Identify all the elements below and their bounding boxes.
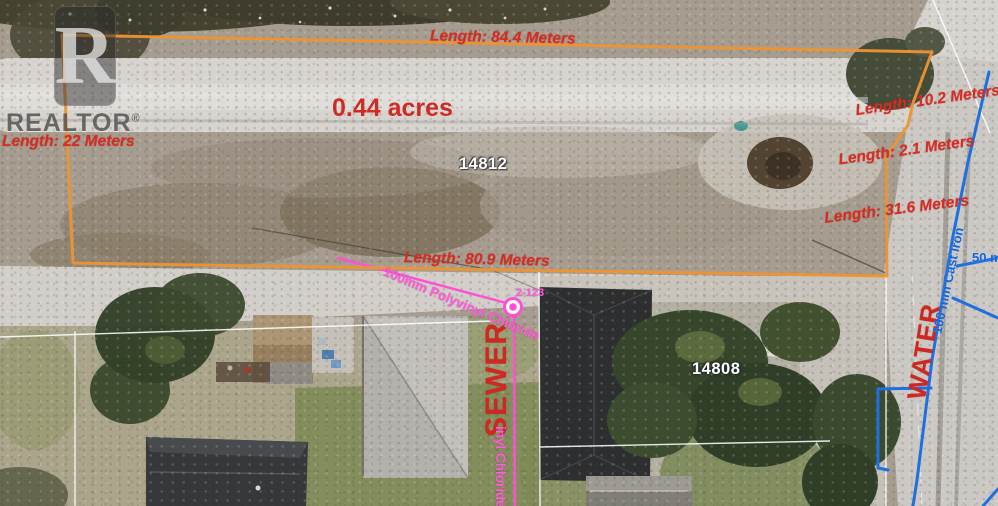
lot-area-label: 0.44 acres <box>332 94 453 123</box>
parcel-number-14812: 14812 <box>459 155 507 174</box>
realtor-logo-block: R <box>54 6 116 106</box>
realtor-logo-letter: R <box>55 16 116 96</box>
sewer-pipe-material-label-vertical: inyl Chloride <box>493 426 508 506</box>
measurement-label-top: Length: 84.4 Meters <box>430 27 576 48</box>
sewer-node-id-label: 2-123 <box>516 287 544 299</box>
registered-trademark-icon: ® <box>132 113 140 125</box>
sewer-utility-label: SEWER <box>480 337 514 437</box>
aerial-parcel-map: R REALTOR® Length: 84.4 Meters Length: 2… <box>0 0 998 506</box>
sewer-manhole-node <box>505 299 522 316</box>
measurement-label-left: Length: 22 Meters <box>2 133 135 151</box>
water-scale-label: 50 m <box>972 250 998 265</box>
realtor-watermark: R REALTOR® <box>4 6 144 138</box>
measurement-label-bottom: Length: 80.9 Meters <box>404 249 550 271</box>
parcel-number-14808: 14808 <box>692 360 740 379</box>
